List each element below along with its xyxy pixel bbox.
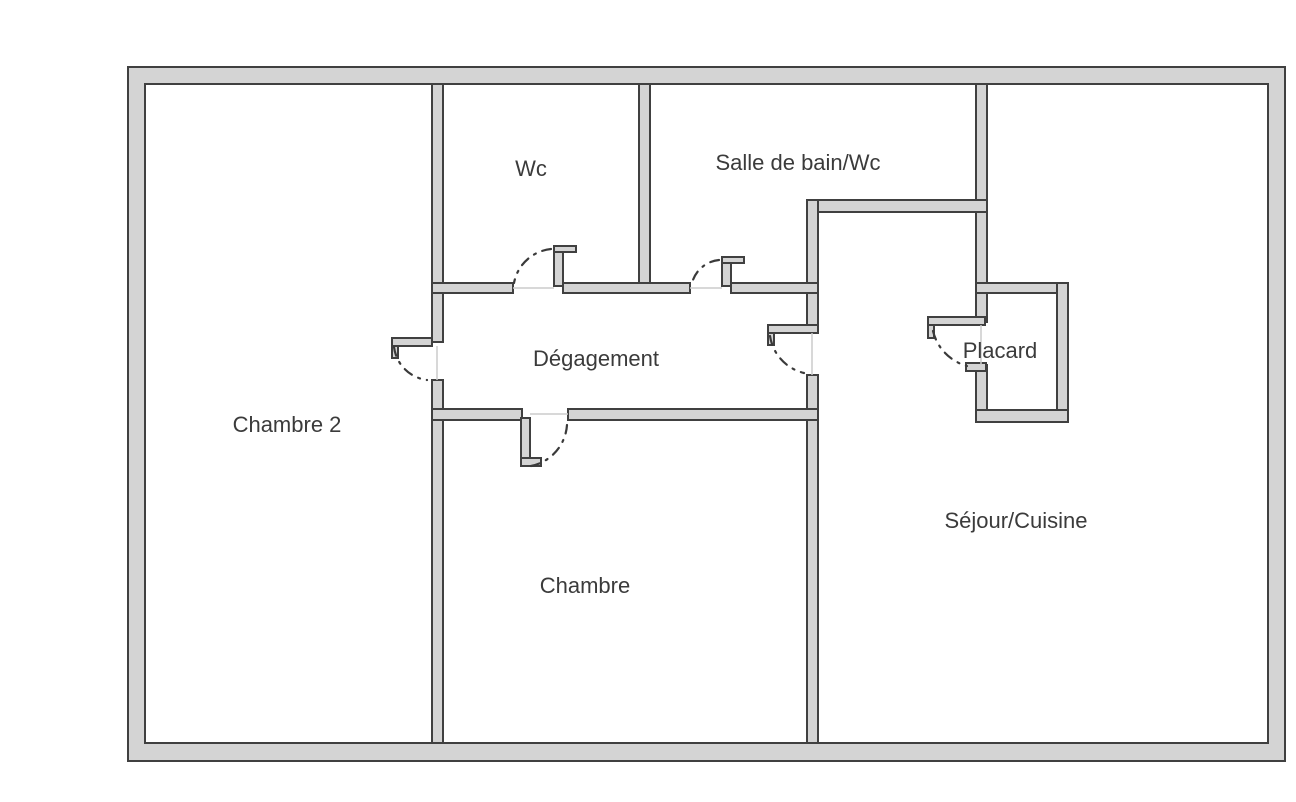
room-label-wc: Wc: [515, 156, 547, 181]
wall-sejour-left-lower: [807, 375, 818, 743]
door-jamb-wc: [554, 246, 576, 252]
wall-corridor-top-left: [432, 283, 513, 293]
room-label-chambre-2: Chambre 2: [233, 412, 342, 437]
wall-wc-sdb: [639, 84, 650, 293]
wall-corridor-top-right: [731, 283, 818, 293]
wall-corridor-bottom-right: [568, 409, 818, 420]
room-label-sejour-cuisine: Séjour/Cuisine: [944, 508, 1087, 533]
wall-chambre2-lower: [432, 380, 443, 743]
floor-plan-page: Chambre 2 Wc Salle de bain/Wc Dégagement…: [0, 0, 1296, 802]
wall-placard-door-catch: [966, 363, 986, 371]
room-label-placard: Placard: [963, 338, 1038, 363]
wall-sdb-bottom: [807, 200, 987, 212]
door-jamb-sdb: [722, 257, 744, 263]
wall-placard-right: [1057, 283, 1068, 422]
room-label-degagement: Dégagement: [533, 346, 659, 371]
wall-corridor-top-mid: [563, 283, 690, 293]
door-leaf-placard: [928, 317, 985, 325]
wall-placard-bottom: [976, 410, 1068, 422]
room-label-chambre: Chambre: [540, 573, 630, 598]
wall-chambre2-upper: [432, 84, 443, 342]
floor-plan: Chambre 2 Wc Salle de bain/Wc Dégagement…: [0, 0, 1296, 802]
wall-placard-top: [976, 283, 1068, 293]
door-leaf-chambre2: [392, 338, 432, 346]
room-label-salle-de-bain-wc: Salle de bain/Wc: [715, 150, 880, 175]
wall-sejour-left-upper: [807, 200, 818, 330]
wall-corridor-bottom-left: [432, 409, 522, 420]
door-leaf-sejour: [768, 325, 818, 333]
